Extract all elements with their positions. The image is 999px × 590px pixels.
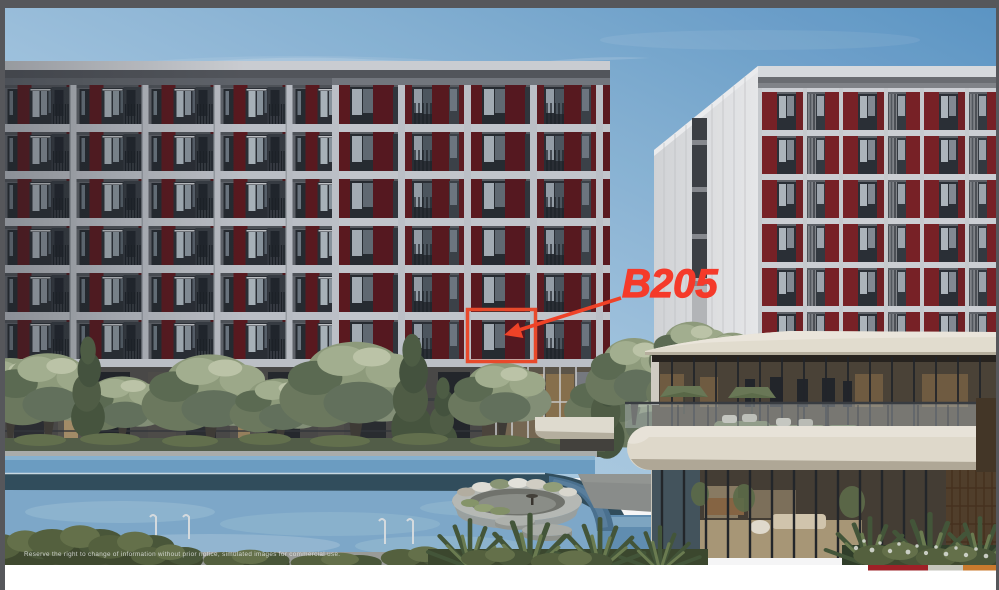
svg-text:B205: B205: [622, 262, 718, 306]
